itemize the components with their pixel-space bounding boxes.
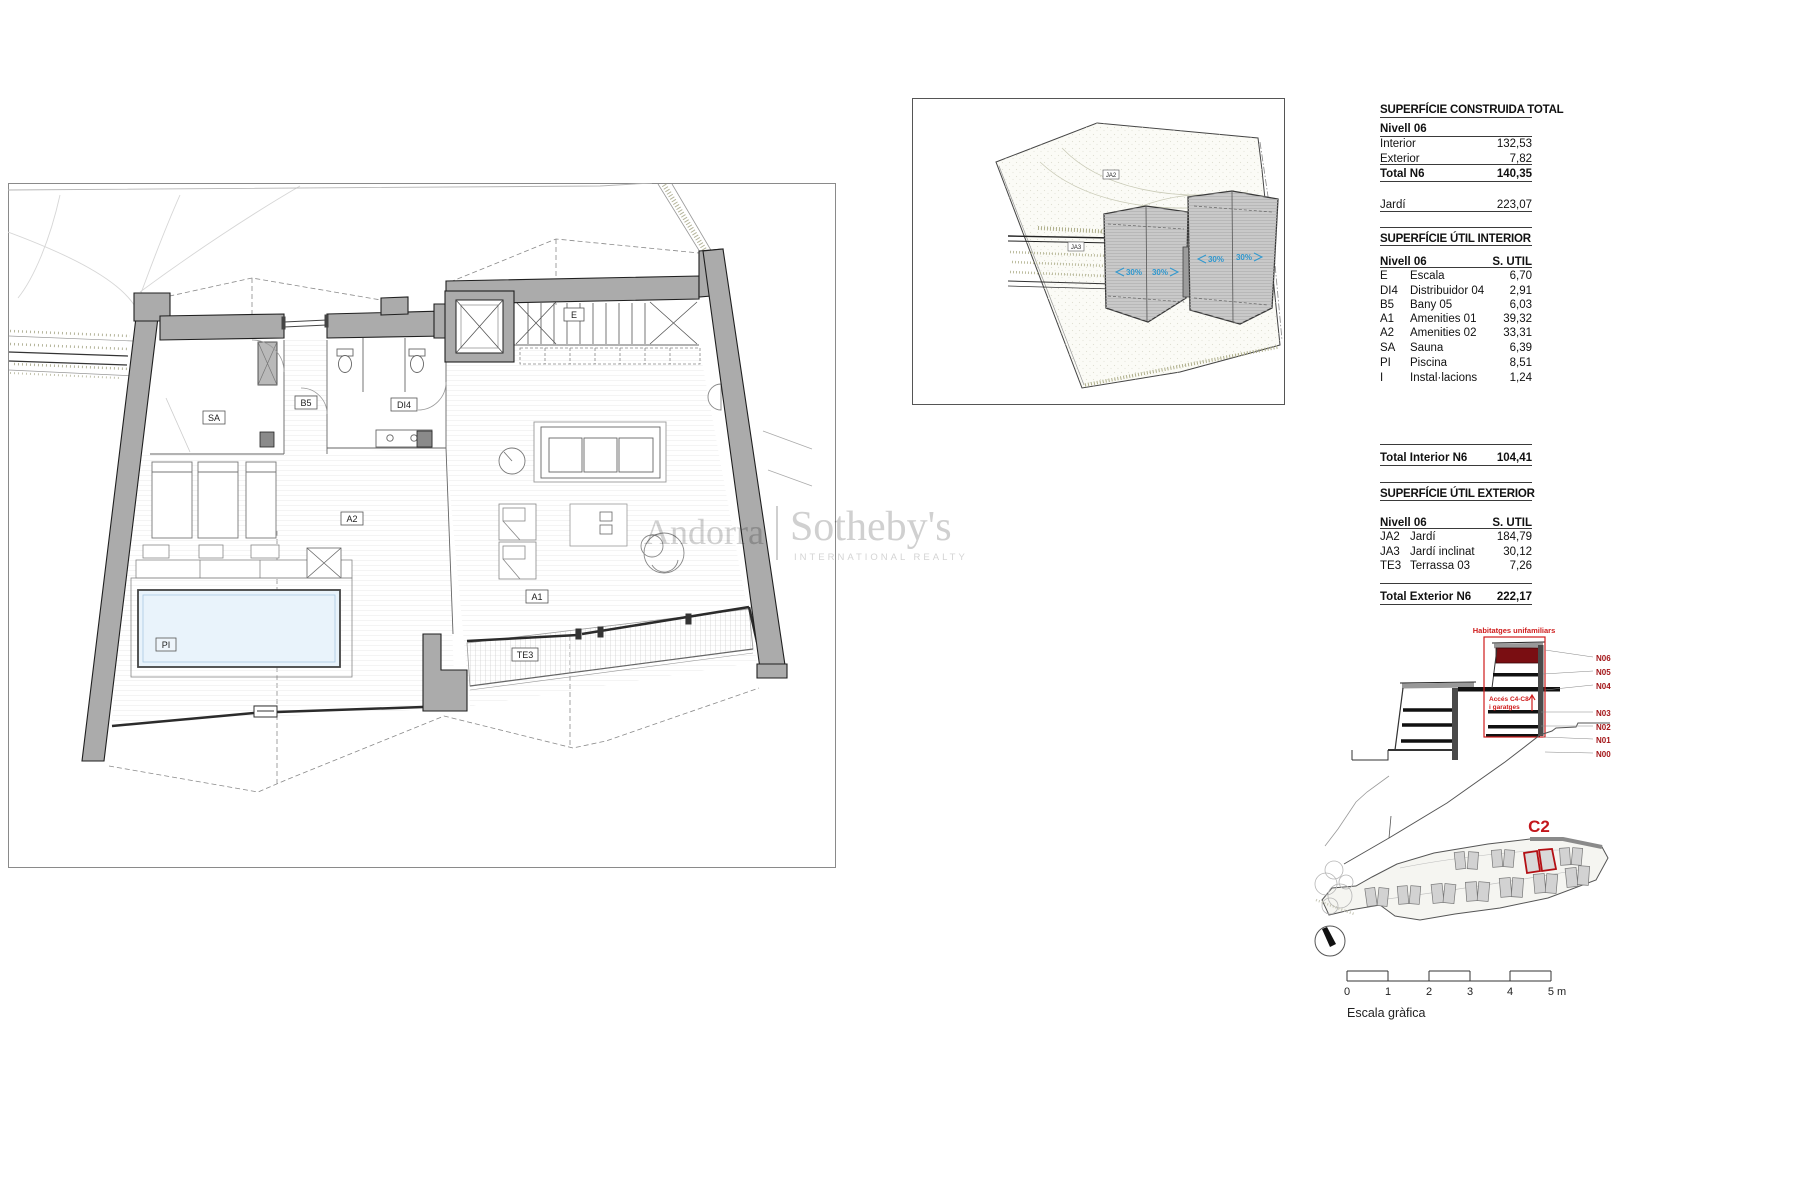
table-interior-title: SUPERFÍCIE ÚTIL INTERIOR xyxy=(1380,232,1532,246)
table-row: PIPiscina8,51 xyxy=(1380,356,1532,370)
table-row: SASauna6,39 xyxy=(1380,341,1532,355)
section-access-note: Accés C4-C8 xyxy=(1489,696,1529,703)
graphic-scale-bar xyxy=(1347,971,1551,981)
label-ja2: JA2 xyxy=(1106,173,1117,179)
scale-tick-1: 1 xyxy=(1385,986,1391,998)
wall-top-a xyxy=(160,314,284,340)
wall-clock xyxy=(499,448,525,474)
watermark-andorra: Andorra xyxy=(644,506,764,550)
level-n04: N04 xyxy=(1596,682,1611,691)
table-row: A2Amenities 0233,31 xyxy=(1380,326,1532,340)
scale-tick-3: 3 xyxy=(1467,986,1473,998)
slope-label: 30% xyxy=(1152,268,1168,277)
scale-tick-0: 0 xyxy=(1344,986,1350,998)
terrain-contours xyxy=(8,186,300,308)
table-row: JA2Jardí184,79 xyxy=(1380,530,1532,544)
table-row: Interior132,53 xyxy=(1380,137,1532,151)
table-row: Jardí223,07 xyxy=(1380,198,1532,212)
site-plan-drawing: 30% 30% 30% 30% JA2 JA3 xyxy=(912,98,1285,405)
column-block-1 xyxy=(260,432,274,447)
table-row: DI4Distribuidor 042,91 xyxy=(1380,284,1532,298)
lounger-furniture xyxy=(152,462,276,538)
site-building-a xyxy=(1104,206,1188,322)
unit-label-c2: C2 xyxy=(1528,817,1550,836)
table-row: JA3Jardí inclinat30,12 xyxy=(1380,545,1532,559)
table-total-row: Total Exterior N6222,17 xyxy=(1380,590,1532,604)
table-row: B5Bany 056,03 xyxy=(1380,298,1532,312)
watermark-sothebys: Sotheby's xyxy=(790,506,968,548)
table-row: TE3Terrassa 037,26 xyxy=(1380,559,1532,573)
wall-jog xyxy=(434,304,446,338)
wall-right-foot xyxy=(757,664,787,678)
table-row: EEscala6,70 xyxy=(1380,269,1532,283)
wall-pillar-top xyxy=(381,297,408,315)
label-ja3: JA3 xyxy=(1071,245,1082,251)
watermark-right: Sotheby's INTERNATIONAL REALTY xyxy=(790,506,968,563)
table-row: IInstal·lacions1,24 xyxy=(1380,371,1532,385)
area-tables: SUPERFÍCIE CONSTRUIDA TOTAL Nivell 06 In… xyxy=(1380,100,1532,620)
label-te3: TE3 xyxy=(517,650,534,660)
scale-tick-2: 2 xyxy=(1426,986,1432,998)
label-pi: PI xyxy=(162,640,171,650)
highlighted-unit-c2 xyxy=(1524,849,1556,873)
label-e: E xyxy=(571,310,577,320)
level-labels: N06 N05 N04 N03 N02 N01 N00 xyxy=(1596,654,1611,759)
table-construida-title: SUPERFÍCIE CONSTRUIDA TOTAL xyxy=(1380,103,1532,117)
scale-bar-labels: 0 1 2 3 4 5 m xyxy=(1344,986,1566,998)
section-access-note2: i garatges xyxy=(1489,704,1520,711)
table-total-row: Total Interior N6104,41 xyxy=(1380,451,1532,465)
level-n05: N05 xyxy=(1596,668,1611,677)
pool xyxy=(138,590,340,667)
scale-tick-4: 4 xyxy=(1507,986,1513,998)
level-n03: N03 xyxy=(1596,709,1611,718)
label-a1: A1 xyxy=(531,592,542,602)
level-n00: N00 xyxy=(1596,750,1611,759)
label-sa: SA xyxy=(208,413,220,423)
label-a2: A2 xyxy=(346,514,357,524)
watermark-tagline: INTERNATIONAL REALTY xyxy=(790,552,968,563)
level-n01: N01 xyxy=(1596,736,1611,745)
north-arrow-icon xyxy=(1315,926,1345,956)
column-block-2 xyxy=(417,431,432,447)
slope-label: 30% xyxy=(1208,255,1224,264)
site-boundary-line xyxy=(8,183,652,190)
building-section: Habitatges unifamiliars Accés C4-C8 i ga… xyxy=(1344,626,1611,864)
staircase xyxy=(516,302,697,344)
highlighted-level-n06 xyxy=(1496,648,1541,663)
watermark-divider xyxy=(776,506,778,560)
scale-caption: Escala gràfica xyxy=(1347,1006,1426,1020)
table-total-row: Total N6140,35 xyxy=(1380,167,1532,181)
label-b5: B5 xyxy=(300,398,311,408)
scale-tick-5m: 5 m xyxy=(1548,986,1566,998)
label-di4: DI4 xyxy=(397,400,411,410)
toilet-fixtures xyxy=(337,349,425,373)
rug-and-tables xyxy=(570,504,627,546)
slope-label: 30% xyxy=(1126,268,1142,277)
slope-label: 30% xyxy=(1236,253,1252,262)
section-and-key-graphics: Habitatges unifamiliars Accés C4-C8 i ga… xyxy=(1280,590,1700,1030)
level-n02: N02 xyxy=(1596,723,1611,732)
table-construida-subtitle: Nivell 06 xyxy=(1380,122,1532,136)
table-exterior-title: SUPERFÍCIE ÚTIL EXTERIOR xyxy=(1380,487,1532,501)
top-window xyxy=(282,315,328,329)
access-arrow xyxy=(1529,695,1535,711)
location-overview: C2 xyxy=(1315,776,1608,920)
sofa xyxy=(534,422,666,482)
table-row: A1Amenities 0139,32 xyxy=(1380,312,1532,326)
brand-watermark: Andorra Sotheby's INTERNATIONAL REALTY xyxy=(644,506,968,563)
level-n06: N06 xyxy=(1596,654,1611,663)
section-caption: Habitatges unifamiliars xyxy=(1473,626,1556,635)
sa-room-diagonal xyxy=(166,398,190,452)
elevator-shaft xyxy=(445,291,514,362)
outdoor-shower-box xyxy=(307,548,341,578)
vegetation-strip-left xyxy=(9,331,136,378)
architectural-plan-sheet: { "watermark": { "left": "Andorra", "rig… xyxy=(0,0,1800,1200)
